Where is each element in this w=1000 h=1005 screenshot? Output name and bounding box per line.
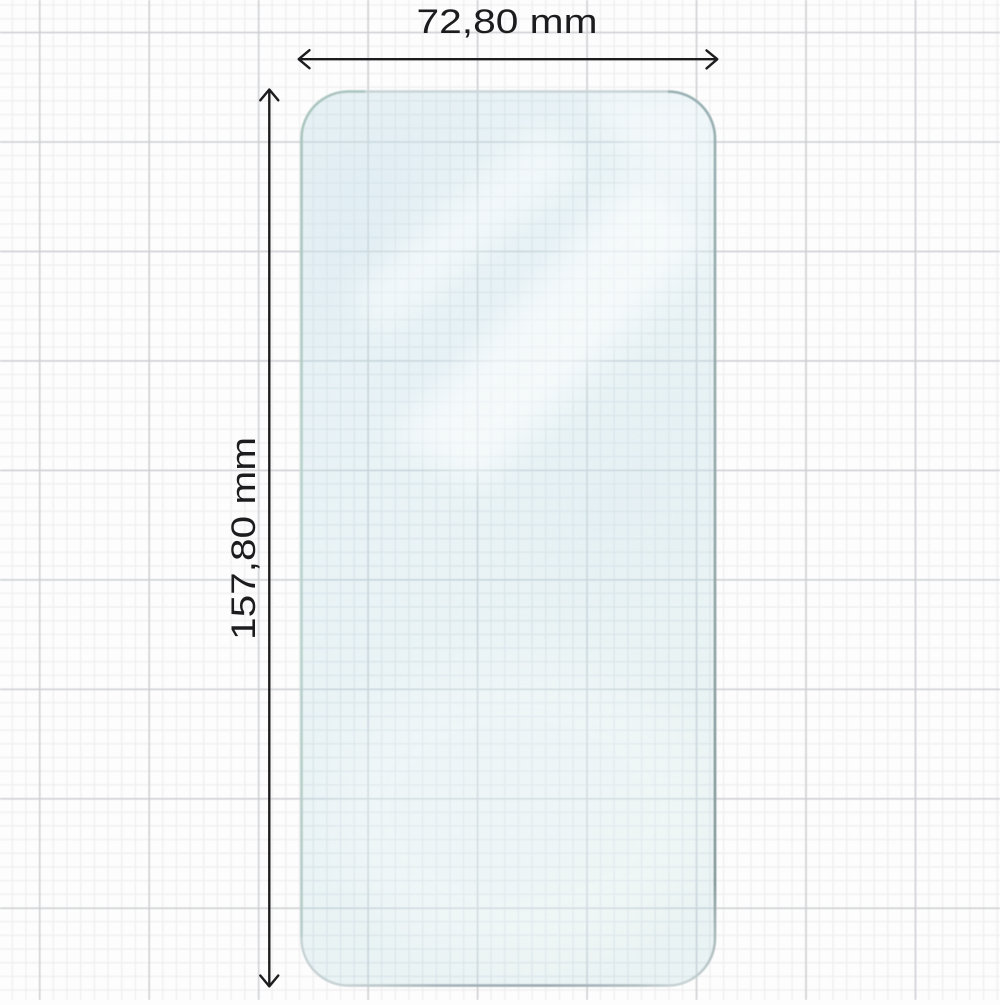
svg-text:72,80 mm: 72,80 mm <box>417 3 598 41</box>
svg-text:157,80 mm: 157,80 mm <box>225 437 263 640</box>
